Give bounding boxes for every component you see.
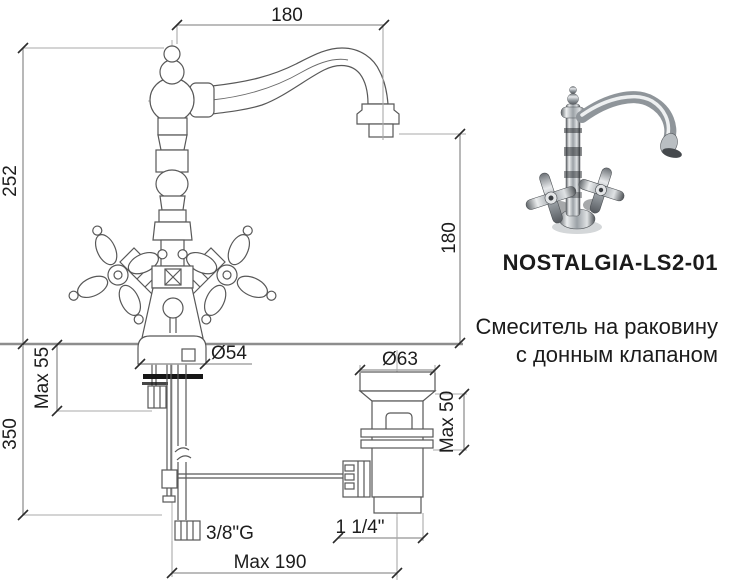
product-photo (518, 87, 682, 235)
dim-label-supply-thread: 3/8"G (206, 523, 254, 544)
dim-label-max-deck: Max 55 (32, 347, 53, 409)
dim-label-drain-max-deck: Max 50 (437, 391, 458, 453)
product-description: Смеситель на раковину с донным клапаном (455, 313, 718, 369)
dim-label-height: 252 (0, 165, 21, 197)
product-info: NOSTALGIA-LS2-01 Смеситель на раковину с… (455, 250, 718, 369)
product-model: NOSTALGIA-LS2-01 (455, 250, 718, 276)
dim-label-base-diameter: Ø54 (211, 343, 247, 364)
dim-label-rod-reach: Max 190 (234, 552, 307, 573)
faucet-spec-sheet: 180 252 180 Ø54 Max 55 350 3/8"G Ø63 Max… (0, 0, 740, 587)
dim-label-drain-thread: 1 1/4" (335, 517, 384, 538)
faucet-body (150, 46, 214, 266)
drain-assembly (343, 372, 435, 513)
dim-label-drain-diameter: Ø63 (382, 349, 418, 370)
product-description-line2: с донным клапаном (455, 341, 718, 369)
faucet-spout (212, 48, 399, 137)
dim-label-spout-reach: 180 (271, 5, 303, 26)
product-description-line1: Смеситель на раковину (455, 313, 718, 341)
dim-label-supply-length: 350 (0, 418, 21, 450)
